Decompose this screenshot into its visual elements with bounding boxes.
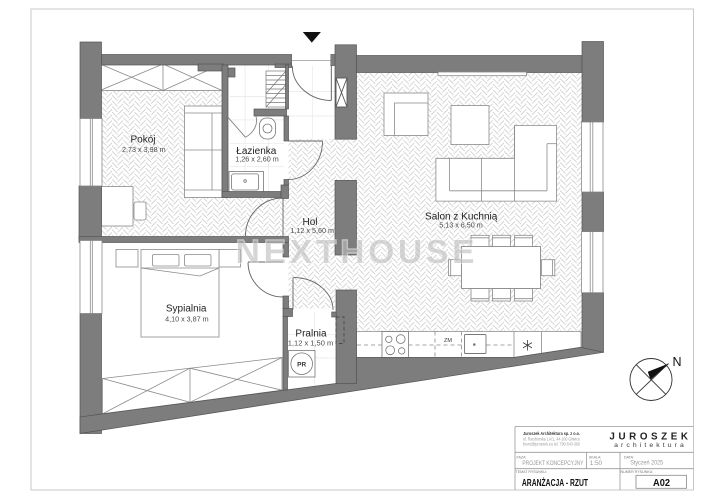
svg-text:5,13 x 6,50 m: 5,13 x 6,50 m <box>439 221 483 230</box>
svg-text:architektura: architektura <box>614 442 687 449</box>
svg-text:1:50: 1:50 <box>590 460 603 467</box>
svg-text:NUMER RYSUNKU:: NUMER RYSUNKU: <box>621 470 654 474</box>
svg-text:ZM: ZM <box>444 338 452 344</box>
svg-text:FAZA:: FAZA: <box>517 456 527 460</box>
svg-text:PR: PR <box>297 362 306 369</box>
svg-text:Pokój: Pokój <box>130 134 155 145</box>
svg-text:1,12 x 1,50 m: 1,12 x 1,50 m <box>288 338 333 347</box>
svg-text:TEMAT RYSUNKU:: TEMAT RYSUNKU: <box>516 470 547 474</box>
svg-text:1,26 x 2,60 m: 1,26 x 2,60 m <box>235 155 279 164</box>
svg-text:Sypialnia: Sypialnia <box>166 304 207 315</box>
svg-text:NEXTHOUSE: NEXTHOUSE <box>236 234 479 271</box>
svg-text:PROJEKT KONCEPCYJNY: PROJEKT KONCEPCYJNY <box>522 460 583 467</box>
svg-text:A02: A02 <box>653 477 670 489</box>
svg-text:2,73 x 3,98 m: 2,73 x 3,98 m <box>122 145 166 154</box>
svg-text:N: N <box>672 355 681 369</box>
svg-text:Styczeń 2025: Styczeń 2025 <box>630 460 663 467</box>
svg-text:Juroszek Architektura sp. z o.: Juroszek Architektura sp. z o.o. <box>523 431 580 436</box>
svg-text:biuro@juroszek.eu tel. 790-543: biuro@juroszek.eu tel. 790-543-366 <box>523 441 581 446</box>
svg-text:4,10 x 3,87 m: 4,10 x 3,87 m <box>165 315 209 324</box>
svg-text:JUROSZEK: JUROSZEK <box>609 432 691 443</box>
svg-text:SKALA:: SKALA: <box>589 456 602 460</box>
svg-text:ARANŻACJA - RZUT: ARANŻACJA - RZUT <box>522 476 588 489</box>
